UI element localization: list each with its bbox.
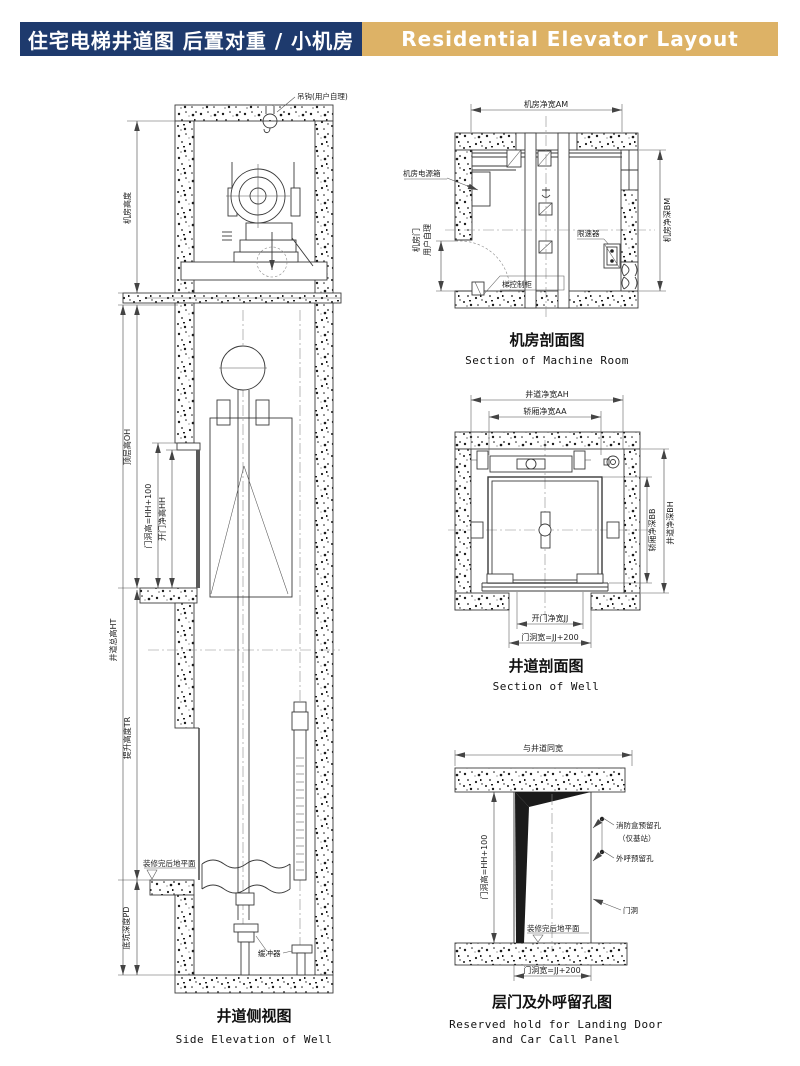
elevator-car <box>210 346 292 920</box>
side-elevation-view: 吊钩(用户自理) <box>108 91 348 1046</box>
machine-room-section-view: 机房电源箱 机房门 用户自理 梯控制柜 限速器 机房净宽AM 机房净深BM 机房… <box>403 99 672 367</box>
same-width-label: 与井道同宽 <box>523 743 563 753</box>
well-width-label: 井道净宽AH <box>525 389 569 399</box>
side-elevation-caption-cn: 井道侧视图 <box>216 1007 291 1025</box>
counterweight <box>292 702 308 880</box>
car-buffer <box>234 924 258 975</box>
travel-height-label: 提升高度TR <box>122 716 132 759</box>
power-box-label: 机房电源箱 <box>403 168 441 178</box>
counterweight-buffer <box>292 945 312 975</box>
well-section-caption-cn: 井道剖面图 <box>508 657 583 675</box>
car-width-label: 轿厢净宽AA <box>523 406 567 416</box>
lintel-wall <box>455 768 625 792</box>
finished-floor-label: 装修完后地平面 <box>143 858 196 868</box>
door-hole-width-label: 门洞宽=JJ+200 <box>521 632 578 642</box>
ld-door-width-label: 门洞宽=JJ+200 <box>523 965 580 975</box>
machine-room-height-label: 机房高度 <box>122 192 132 224</box>
hook-label: 吊钩(用户自理) <box>297 91 348 101</box>
ld-caption-cn: 层门及外呼留孔图 <box>492 993 612 1011</box>
elevator-technical-drawing: 吊钩(用户自理) <box>0 0 800 1066</box>
fire-box-hole-label-1: 消防盒预留孔 <box>616 820 661 830</box>
ld-door-height-label: 门洞高=HH+100 <box>479 835 489 900</box>
finished-floor-marker <box>144 868 196 879</box>
governor-plan <box>604 456 619 468</box>
speed-governor <box>577 239 620 268</box>
call-box-hole-label: 外呼预留孔 <box>616 853 654 863</box>
well-section-view: 井道净宽AH 轿厢净宽AA 轿厢净深BB 井道净深BH 开门净宽JJ 门洞宽=J… <box>448 389 675 693</box>
ld-caption-en1: Reserved hold for Landing Door <box>449 1018 663 1031</box>
reserved-hole-leaders <box>593 817 621 910</box>
ld-finished-floor-marker <box>527 933 589 942</box>
door-clear-height-label: 开门净高HH <box>157 497 167 541</box>
door-hole-label: 门洞 <box>623 906 638 915</box>
buffer-label: 缓冲器 <box>258 948 281 958</box>
landing-door-elevation <box>177 443 200 588</box>
floor-slab <box>455 943 627 965</box>
well-section-caption-en: Section of Well <box>493 680 600 693</box>
pit-depth-label: 底坑深度PD <box>121 907 131 950</box>
traction-machine <box>222 162 313 277</box>
well-depth-label: 井道净深BH <box>665 501 675 545</box>
mr-width-label: 机房净宽AM <box>524 99 568 109</box>
mr-door-label-2: 用户自理 <box>422 224 432 256</box>
car-bottom-break <box>202 860 290 905</box>
door-clear-width-label: 开门净宽JJ <box>532 613 569 623</box>
governor-label: 限速器 <box>577 229 600 238</box>
ld-finished-floor-label: 装修完后地平面 <box>527 923 580 933</box>
control-cabinet-label: 梯控制柜 <box>502 279 532 289</box>
mr-caption-en: Section of Machine Room <box>465 354 629 367</box>
top-floor-height-label: 顶层高OH <box>122 429 132 465</box>
car-depth-label: 轿厢净深BB <box>647 509 657 552</box>
machine-beam <box>181 262 327 280</box>
door-hole-height-label: 门洞高=HH+100 <box>143 484 153 549</box>
mr-depth-label: 机房净深BM <box>662 198 672 242</box>
fire-box-hole-label-2: （仅基站） <box>618 833 656 843</box>
mr-door-label-1: 机房门 <box>411 228 421 252</box>
landing-door-hole-view: 与井道同宽 门洞高=HH+100 消防盒预留孔 （仅基站） 外呼预留孔 门洞 装… <box>449 743 663 1046</box>
ld-caption-en2: and Car Call Panel <box>492 1033 620 1046</box>
mr-caption-cn: 机房剖面图 <box>509 331 584 349</box>
side-elevation-caption-en: Side Elevation of Well <box>176 1033 333 1046</box>
well-total-height-label: 井道总高HT <box>108 618 118 661</box>
